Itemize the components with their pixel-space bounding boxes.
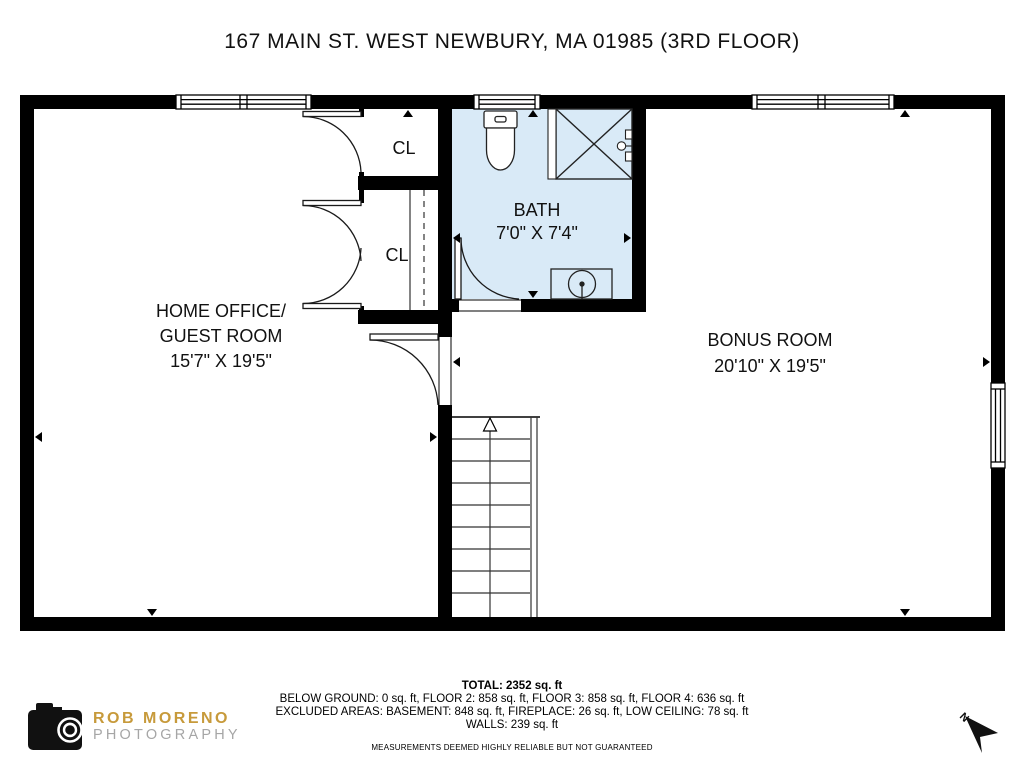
- camera-icon: [28, 702, 86, 752]
- bonus-room-dimensions: 20'10" X 19'5": [714, 356, 826, 376]
- door-arc: [303, 248, 361, 309]
- home-office-dimensions: 15'7" X 19'5": [170, 351, 272, 371]
- toilet-icon: [484, 111, 517, 170]
- stairs-up-arrow-icon: [484, 418, 497, 431]
- floor-plan: HOME OFFICE/ GUEST ROOM 15'7" X 19'5" BO…: [0, 0, 1024, 768]
- window-icon: [991, 383, 1005, 468]
- dimension-arrow: [403, 110, 413, 117]
- window-icon: [752, 95, 894, 109]
- north-arrow-icon: N: [945, 700, 1007, 758]
- dimension-arrow: [900, 110, 910, 117]
- dimension-arrow: [453, 357, 460, 367]
- dimension-arrow: [430, 432, 437, 442]
- home-office-label-line1: HOME OFFICE/: [156, 301, 286, 321]
- bath-label: BATH: [514, 200, 561, 220]
- dimension-arrow: [35, 432, 42, 442]
- home-office-label-line2: GUEST ROOM: [160, 326, 283, 346]
- dimension-arrow: [147, 609, 157, 616]
- window-icon: [176, 95, 311, 109]
- bath-dimensions: 7'0" X 7'4": [496, 223, 578, 243]
- door-arc: [370, 334, 438, 405]
- dimension-arrow: [983, 357, 990, 367]
- closet-top-label: CL: [392, 138, 415, 158]
- window-icon: [474, 95, 540, 109]
- door-arc: [303, 112, 361, 173]
- door-arc: [303, 201, 361, 262]
- photographer-logo: ROB MORENO PHOTOGRAPHY: [28, 702, 241, 752]
- closet-rod: [410, 190, 424, 310]
- dimension-arrow: [900, 609, 910, 616]
- stairs: [452, 417, 540, 617]
- logo-name: ROB MORENO: [93, 710, 241, 727]
- closet-bottom-label: CL: [385, 245, 408, 265]
- logo-subtitle: PHOTOGRAPHY: [93, 727, 241, 744]
- floorplan-page: { "title": "167 MAIN ST. WEST NEWBURY, M…: [0, 0, 1024, 768]
- bonus-room-label: BONUS ROOM: [707, 330, 832, 350]
- total-area: TOTAL: 2352 sq. ft: [0, 680, 1024, 693]
